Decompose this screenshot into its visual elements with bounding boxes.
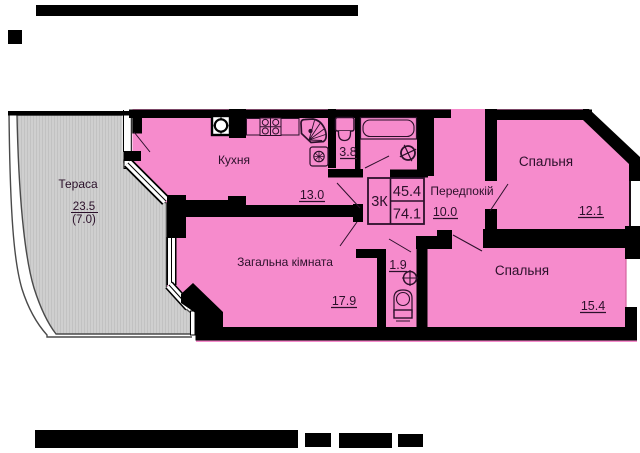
svg-text:1.9: 1.9 bbox=[389, 258, 406, 272]
svg-text:74.1: 74.1 bbox=[393, 207, 421, 223]
svg-text:Спальня: Спальня bbox=[519, 154, 573, 169]
svg-text:3.8: 3.8 bbox=[339, 145, 356, 159]
svg-text:45.4: 45.4 bbox=[393, 184, 421, 200]
svg-text:15.4: 15.4 bbox=[581, 299, 605, 313]
svg-text:Передпокій: Передпокій bbox=[430, 184, 493, 198]
svg-text:17.9: 17.9 bbox=[332, 294, 356, 308]
svg-text:Кухня: Кухня bbox=[218, 153, 250, 167]
svg-text:10.0: 10.0 bbox=[433, 205, 457, 219]
svg-text:Тераса: Тераса bbox=[58, 177, 98, 191]
svg-text:(7.0): (7.0) bbox=[72, 214, 96, 226]
svg-text:13.0: 13.0 bbox=[300, 188, 324, 202]
svg-text:12.1: 12.1 bbox=[579, 204, 603, 218]
svg-text:3К: 3К bbox=[371, 194, 388, 210]
svg-text:Спальня: Спальня bbox=[495, 263, 549, 278]
svg-text:Загальна кімната: Загальна кімната bbox=[237, 255, 333, 269]
svg-text:23.5: 23.5 bbox=[73, 201, 95, 213]
